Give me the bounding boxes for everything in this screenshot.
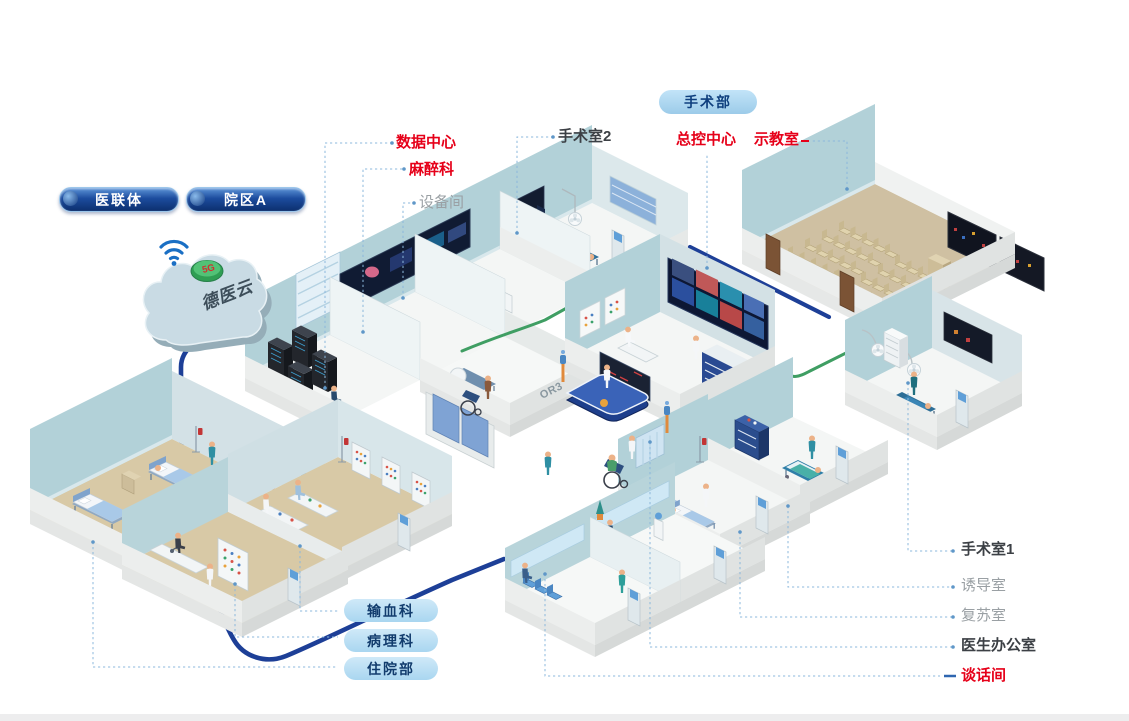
blood-room-door	[398, 513, 410, 551]
callout-induction-room: 诱导室	[961, 577, 1006, 595]
water-dispenser	[654, 513, 663, 541]
recovery-door	[756, 496, 768, 534]
pill-medical-consortium: 医联体	[59, 187, 179, 212]
callout-recovery-room: 复苏室	[961, 607, 1006, 625]
pill-pathology-label: 病理科	[367, 631, 415, 651]
callout-doctor-office: 医生办公室	[961, 637, 1036, 655]
pill-campus-a-label: 院区A	[224, 190, 268, 210]
walking-nurse	[545, 452, 552, 476]
callout-anesthesia: 麻醉科	[409, 161, 454, 179]
callout-talk-room: 谈话间	[961, 667, 1006, 685]
patient-head	[155, 465, 161, 471]
callout-data-center: 数据中心	[396, 134, 456, 152]
callout-demo-room: 示教室	[754, 131, 799, 149]
pill-inpatient-label: 住院部	[367, 659, 415, 679]
5g-badge: 5G	[191, 261, 223, 282]
pill-blood-transfusion-label: 输血科	[367, 601, 415, 621]
talk-room-door	[628, 588, 640, 626]
classroom-door	[840, 271, 854, 312]
pill-blood-transfusion: 输血科	[344, 599, 438, 622]
medical-cloud: 德医云 5G	[143, 241, 271, 352]
talk-room-door	[714, 546, 726, 584]
callout-or1: 手术室1	[961, 541, 1014, 559]
pill-medical-consortium-label: 医联体	[95, 190, 143, 210]
callout-equipment-room: 设备间	[419, 194, 464, 212]
wifi-icon	[161, 241, 187, 265]
callout-or2: 手术室2	[558, 128, 611, 146]
pill-surgery-department-label: 手术部	[684, 92, 732, 112]
callout-master-control: 总控中心	[676, 131, 736, 149]
pill-campus-a: 院区A	[186, 187, 306, 212]
pill-inpatient: 住院部	[344, 657, 438, 680]
or1-door	[956, 390, 968, 428]
page-footer-strip	[0, 714, 1129, 721]
induction-door	[836, 446, 848, 484]
hospital-infographic: OR2 OR3	[0, 0, 1129, 721]
pill-surgery-department: 手术部	[659, 90, 757, 114]
pill-pathology: 病理科	[344, 629, 438, 652]
classroom-door	[766, 234, 780, 275]
hospital-isometric-scene: OR2 OR3	[0, 0, 1129, 721]
pathology-door	[288, 568, 300, 606]
